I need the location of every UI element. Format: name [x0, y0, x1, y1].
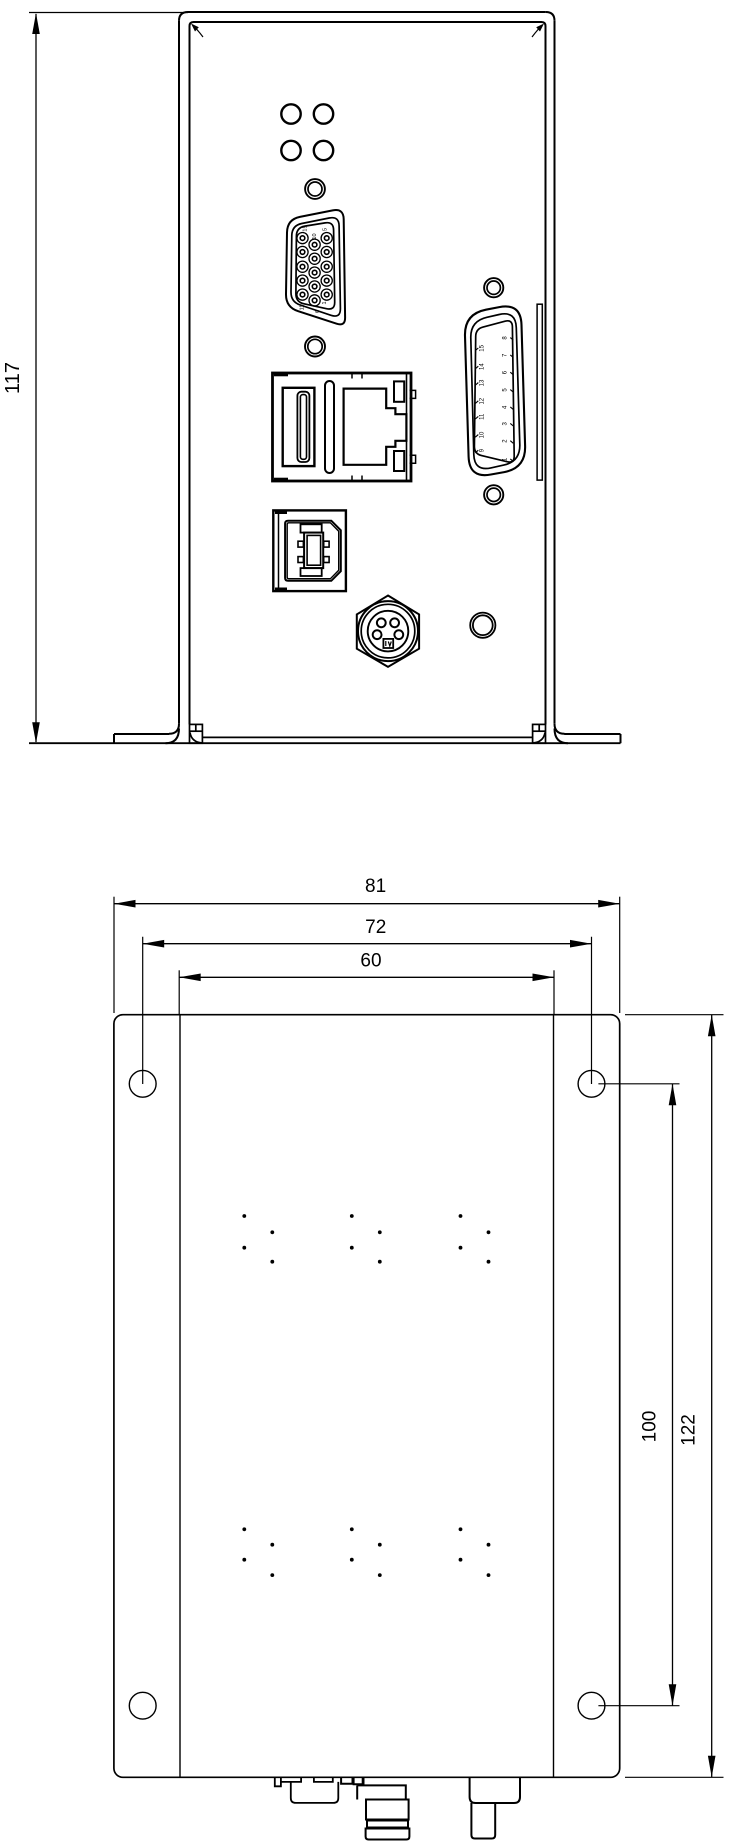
- svg-text:12: 12: [480, 397, 486, 404]
- svg-text:100: 100: [640, 1411, 661, 1443]
- svg-text:10: 10: [480, 431, 486, 438]
- svg-text:14: 14: [480, 363, 486, 370]
- svg-text:15: 15: [480, 344, 486, 351]
- svg-text:117: 117: [2, 362, 24, 394]
- svg-text:11: 11: [300, 305, 306, 311]
- svg-text:11: 11: [480, 413, 486, 420]
- svg-text:6: 6: [315, 310, 321, 313]
- svg-text:5: 5: [323, 228, 329, 231]
- svg-text:10: 10: [312, 233, 318, 239]
- svg-text:15: 15: [303, 225, 309, 231]
- svg-text:1: 1: [322, 301, 328, 304]
- svg-text:13: 13: [480, 379, 486, 386]
- svg-text:122: 122: [679, 1414, 700, 1446]
- svg-text:81: 81: [365, 876, 386, 897]
- svg-text:72: 72: [365, 917, 386, 938]
- svg-text:60: 60: [360, 951, 381, 972]
